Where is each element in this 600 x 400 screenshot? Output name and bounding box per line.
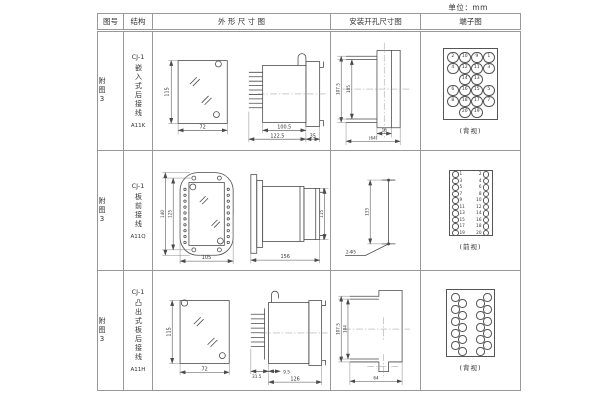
mounting-drawing-a11k: 107.5 105 16 (64): [332, 33, 420, 149]
terminal-pin: 6: [447, 85, 459, 97]
figure-number: 附图3: [98, 77, 105, 105]
hole-spec-label: 2-Φ5: [346, 249, 356, 254]
terminal-pin: 7: [483, 96, 495, 108]
terminal-pin: 9: [471, 52, 483, 64]
terminal-pin: 17: [471, 96, 483, 108]
terminal-pin: [483, 230, 490, 237]
outline-drawing-a11q: 140 125 105 156 115: [154, 153, 330, 269]
structure-label: 嵌入式后接线: [135, 64, 142, 118]
terminal-pin: [452, 230, 459, 237]
dim-inner-height: 104: [342, 324, 347, 332]
view-label: (前视): [459, 241, 481, 251]
header-row: 图号 结构 外 形 尺 寸 图 安装开孔尺寸图 端子图: [98, 14, 521, 31]
dim-height: 115: [166, 327, 172, 336]
structure-label: 板前接线: [135, 193, 142, 229]
terminal-pin: 20: [459, 107, 471, 119]
col-header-structure: 结构: [124, 14, 153, 31]
dim-outer-width: (64): [368, 135, 377, 140]
terminal-pin: 3: [483, 63, 495, 75]
dim-pin-length: 31.5: [252, 374, 262, 379]
dim-hole-distance: 133: [364, 207, 369, 215]
col-header-figure: 图号: [98, 14, 124, 31]
dim-flange: 35: [309, 134, 315, 140]
dim-total-length: 122.5: [270, 134, 284, 140]
terminal-pin: [476, 347, 485, 356]
dim-outer-width: 64: [373, 375, 379, 380]
dim-outer-height: 107.5: [335, 322, 340, 334]
mounting-drawing-a11h: 107.5 104 64: [332, 273, 420, 389]
structure-label: 凸出式板后接线: [135, 299, 142, 362]
terminal-pin: 13: [471, 74, 483, 86]
model-code: A11K: [131, 123, 145, 129]
model-code: A11Q: [130, 234, 145, 240]
terminal-pin: 11: [471, 63, 483, 75]
table-row-a11k: 附图3 CJ-1 嵌入式后接线 A11K: [98, 31, 521, 151]
table-row-a11q: 附图3 CJ-1 板前接线 A11Q: [98, 151, 521, 271]
terminal-pin: 1: [483, 52, 495, 64]
dim-body-length: 126: [290, 376, 299, 382]
dim-height: 115: [164, 87, 170, 96]
dim-depth: 156: [280, 254, 289, 260]
dim-outer-height: 107.5: [335, 83, 340, 95]
terminal-pin: 10: [459, 52, 471, 64]
document-page: 单位：mm 图号 结构 外 形 尺 寸 图 安装开孔尺寸图 端子图 附图3 CJ…: [0, 0, 600, 400]
col-header-terminal: 端子图: [421, 14, 521, 31]
model-code: A11H: [131, 367, 146, 373]
outline-drawing-a11k: 115 72 100.5 122.5 35: [154, 33, 330, 149]
terminal-pin: [458, 347, 467, 356]
view-label: (背视): [459, 125, 481, 135]
series-label: CJ-1: [132, 288, 145, 296]
series-label: CJ-1: [132, 53, 145, 61]
col-header-outline: 外 形 尺 寸 图: [153, 14, 331, 31]
dim-gap: 9.5: [283, 369, 290, 374]
dim-inner-height: 125: [167, 209, 172, 217]
dim-side-height: 115: [319, 209, 324, 217]
dim-body-length: 100.5: [277, 124, 291, 130]
terminal-pin: 8: [447, 96, 459, 108]
terminal-pin: 2: [447, 52, 459, 64]
terminal-diagram-back-view: 2 10 9 1 4 12 11 3 14 13 6 16 15: [443, 48, 498, 120]
terminal-pin: 4: [447, 63, 459, 75]
terminal-pin: 5: [483, 85, 495, 97]
figure-number: 附图3: [98, 197, 105, 225]
terminal-diagram-front-view: 12 34 56 78 910 1112 1314 1516 1718 1920: [449, 170, 493, 236]
dim-inner-height: 105: [345, 85, 350, 93]
dim-slot-width: 16: [381, 128, 387, 133]
dim-width: 72: [201, 366, 207, 372]
terminal-diagram-back-view: [446, 289, 495, 357]
table-row-a11h: 附图3 CJ-1 凸出式板后接线 A11H: [98, 271, 521, 391]
dim-outer-height: 140: [159, 209, 164, 217]
figure-number: 附图3: [98, 317, 105, 345]
mounting-drawing-a11q: 133 2-Φ5: [332, 153, 420, 269]
terminal-pin: 19: [471, 107, 483, 119]
terminal-pin: 14: [459, 74, 471, 86]
outline-drawing-a11h: 115 72 31.5 9.5 126: [154, 273, 330, 389]
terminal-pin: 16: [459, 85, 471, 97]
terminal-pin: 18: [459, 96, 471, 108]
series-label: CJ-1: [132, 182, 145, 190]
terminal-pin: 12: [459, 63, 471, 75]
terminal-pin: 15: [471, 85, 483, 97]
dim-width: 72: [199, 124, 205, 130]
dim-width: 105: [201, 255, 210, 261]
view-label: (背视): [459, 362, 481, 372]
spec-table: 图号 结构 外 形 尺 寸 图 安装开孔尺寸图 端子图 附图3 CJ-1 嵌入式…: [97, 13, 521, 391]
col-header-mounting: 安装开孔尺寸图: [331, 14, 421, 31]
unit-label: 单位：mm: [448, 2, 488, 13]
